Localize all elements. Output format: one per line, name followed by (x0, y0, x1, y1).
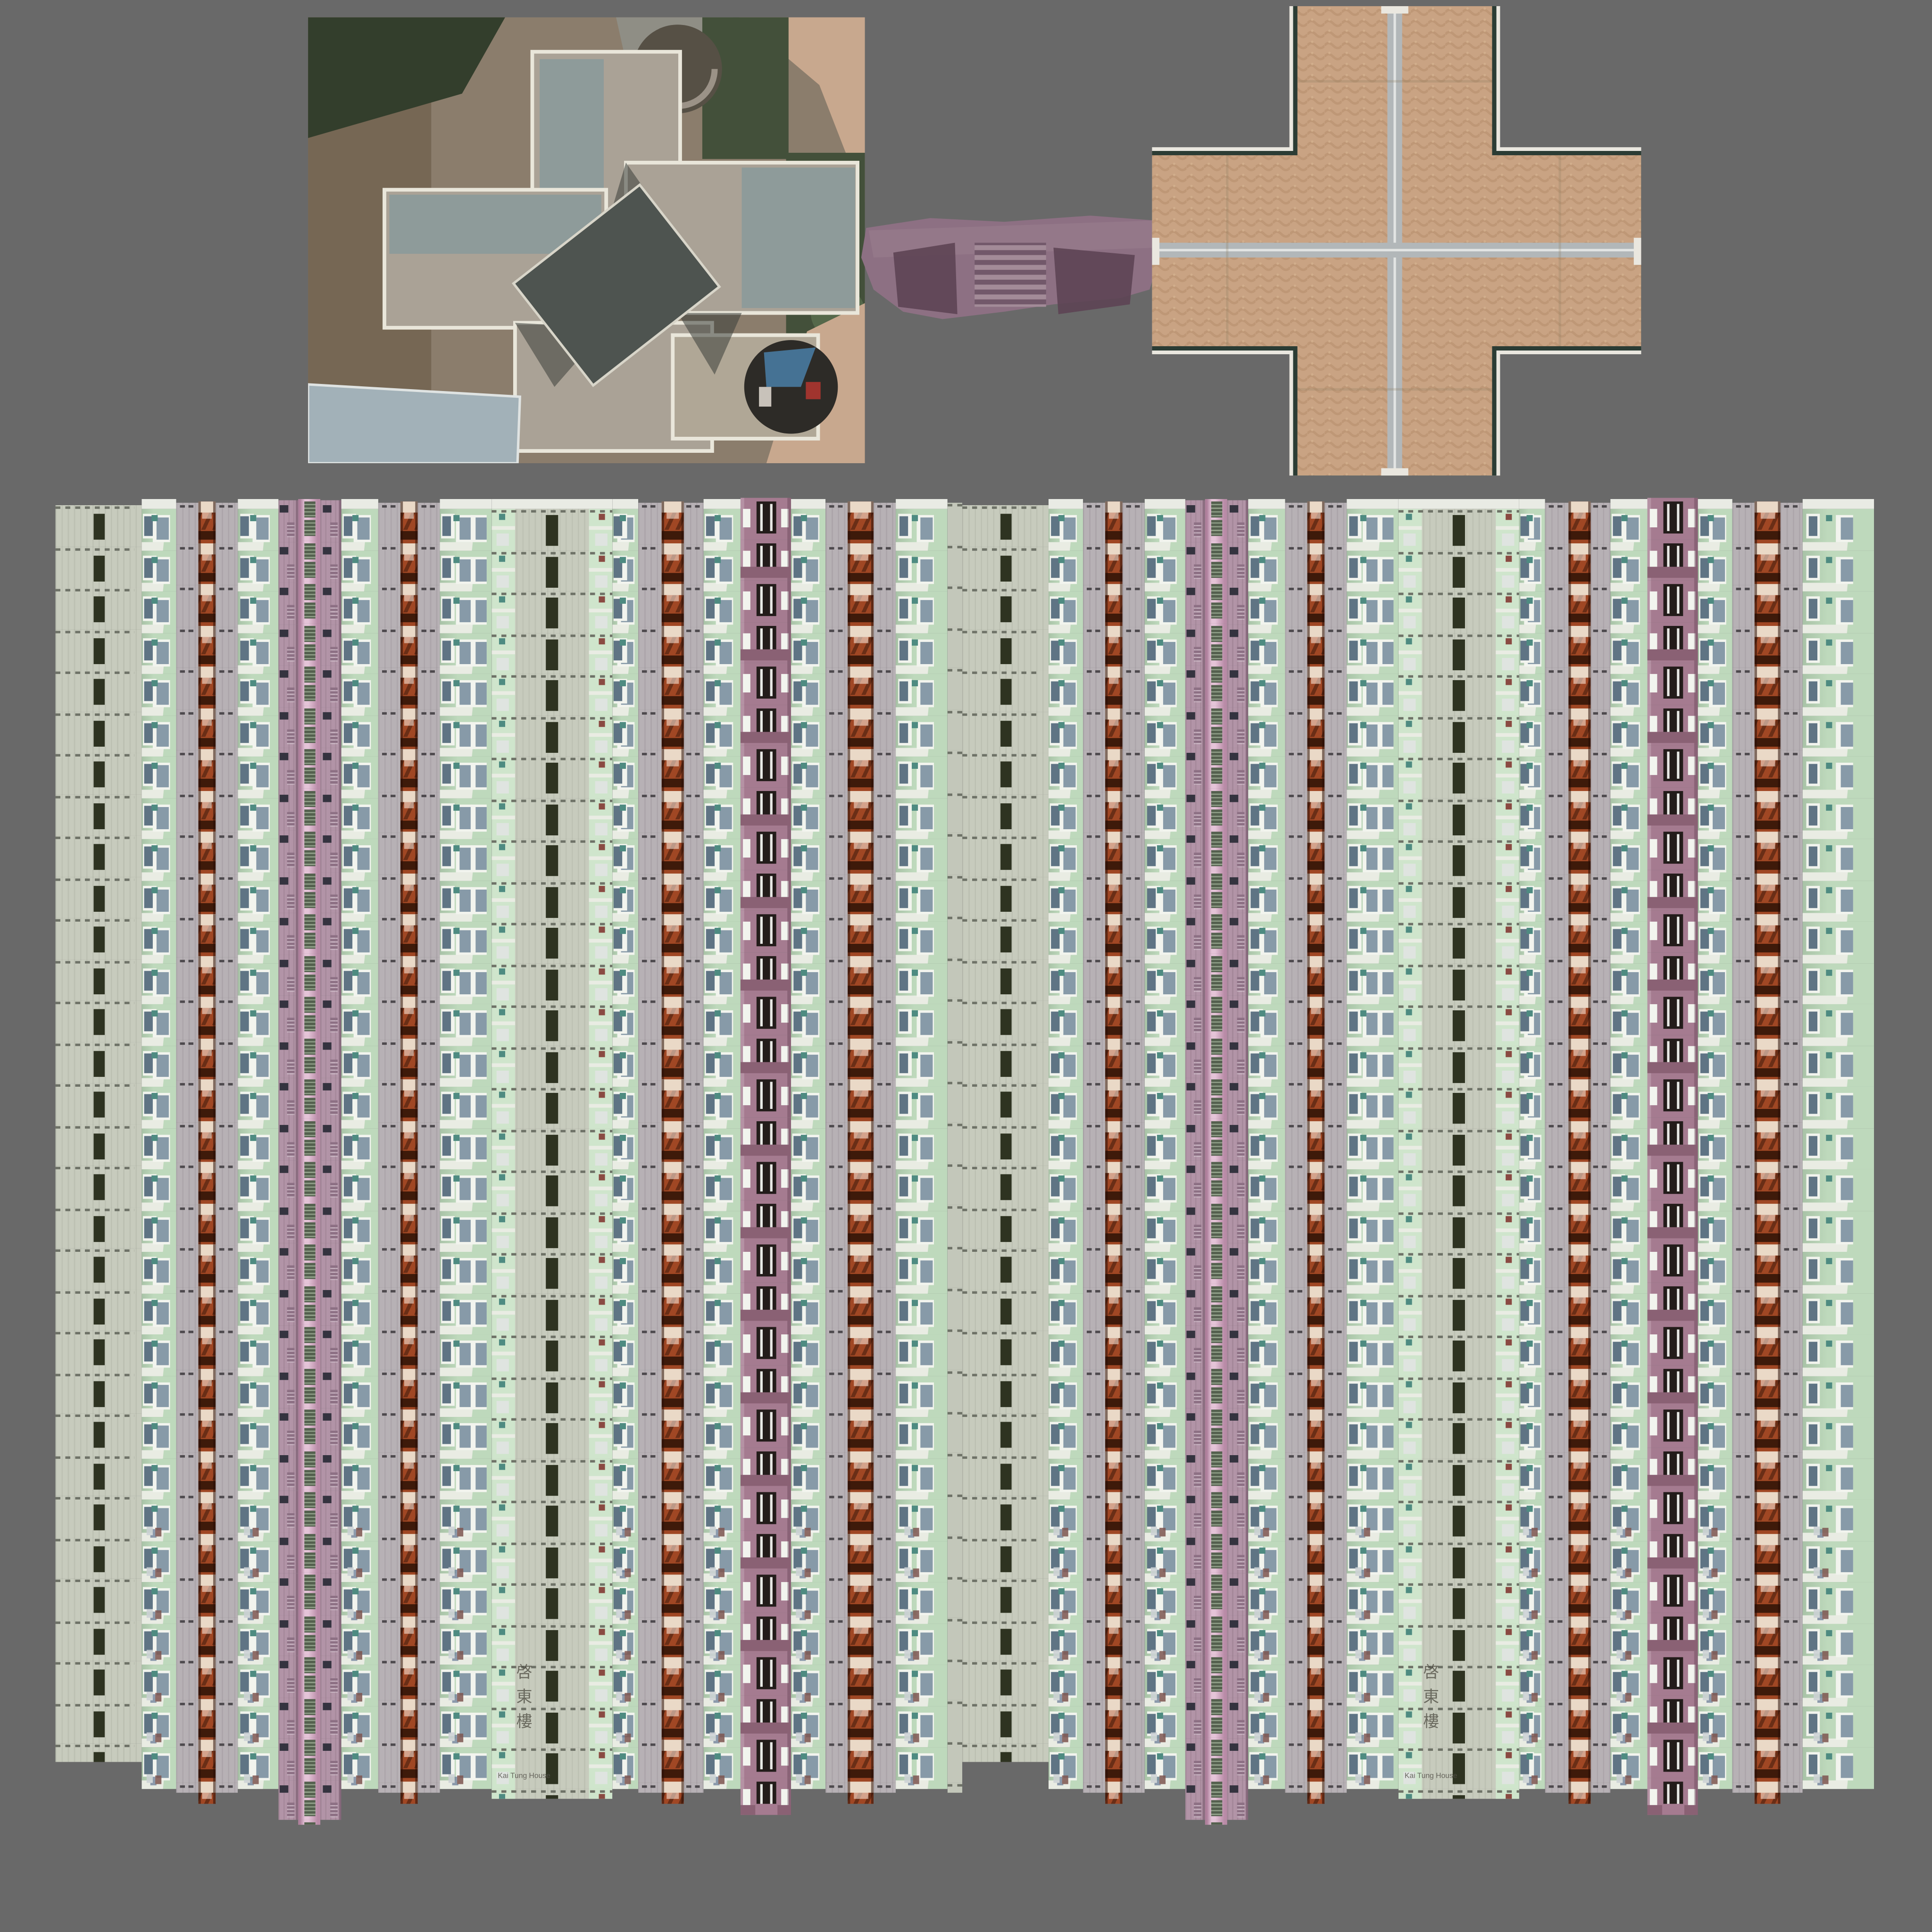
floor-band (1610, 1004, 1647, 1046)
floor-band (142, 1665, 176, 1706)
floor-band (56, 1372, 142, 1414)
floor-band (1285, 1493, 1307, 1535)
floor-band (684, 1617, 704, 1659)
floor-band (1185, 831, 1205, 872)
floor-band (1145, 715, 1185, 757)
floor-band (1205, 664, 1227, 706)
floor-band (278, 1449, 298, 1491)
floor-band (1610, 1293, 1647, 1335)
floor-band (684, 874, 704, 916)
floor-band (491, 798, 612, 839)
floor-band (199, 1368, 216, 1410)
floor-band (848, 791, 874, 832)
floor-band (1591, 1411, 1610, 1452)
floor-band (1145, 1665, 1185, 1706)
floor-band (1545, 1534, 1569, 1576)
floor-band (638, 1163, 662, 1205)
floor-band (1145, 1582, 1185, 1624)
floor-band (320, 1697, 341, 1739)
floor-band (378, 1081, 400, 1122)
floor-band (176, 791, 199, 833)
floor-band (1083, 1369, 1105, 1411)
floor-band (874, 1782, 896, 1793)
floor-band (341, 1293, 378, 1335)
floor-band (400, 584, 418, 625)
floor-band (400, 625, 418, 667)
floor-band (1648, 1695, 1698, 1736)
floor-band (400, 1492, 418, 1533)
floor-band (1123, 1411, 1145, 1452)
texture-atlas-canvas: 啓東樓 Kai Tung House啓東樓 Kai Tung House (0, 0, 1932, 1932)
floor-band (1227, 1243, 1248, 1285)
floor-band (1519, 1376, 1545, 1417)
floor-band (440, 963, 492, 1004)
floor-band (199, 1409, 216, 1451)
floor-band (638, 1411, 662, 1452)
floor-band (216, 1452, 238, 1493)
floor-band (791, 1293, 825, 1335)
floor-band (662, 501, 684, 543)
floor-band (1648, 1447, 1698, 1489)
floor-band (1205, 1737, 1227, 1779)
floor-band (684, 585, 704, 627)
floor-band (1324, 791, 1347, 833)
floor-band (216, 1122, 238, 1163)
floor-band (1324, 833, 1347, 874)
floor-band (56, 877, 142, 918)
floor-band (638, 1576, 662, 1617)
floor-band (1610, 715, 1647, 757)
floor-band (848, 1286, 874, 1327)
facade-strip-m1 (278, 500, 298, 1820)
floor-band (1399, 922, 1519, 963)
floor-band (320, 1491, 341, 1532)
floor-band (662, 1409, 684, 1451)
floor-band (962, 1248, 1049, 1290)
floor-band (1732, 791, 1755, 833)
floor-band (142, 591, 176, 633)
floor-band (1591, 544, 1610, 585)
floor-band (1105, 956, 1123, 997)
floor-band (176, 544, 199, 585)
floor-band (1803, 1334, 1874, 1376)
floor-band (1591, 1328, 1610, 1370)
facade-strip-b (791, 499, 825, 1789)
floor-band (176, 1493, 199, 1535)
floor-band (1105, 1740, 1123, 1781)
floor-band (1205, 1118, 1227, 1160)
floor-band (238, 1665, 278, 1706)
floor-band (298, 1614, 320, 1655)
floor-band (216, 1039, 238, 1081)
floor-band (278, 1326, 298, 1367)
floor-band (1781, 1039, 1803, 1081)
floor-band (848, 501, 874, 543)
floor-band (1698, 550, 1732, 591)
floor-band (662, 791, 684, 832)
floor-band (278, 831, 298, 872)
floor-band (1307, 1657, 1325, 1699)
floor-band (1781, 544, 1803, 585)
floor-band (1185, 1656, 1205, 1698)
floor-band (1307, 791, 1325, 832)
floor-band (896, 509, 948, 550)
floor-band (612, 1665, 638, 1706)
floor-band (1049, 674, 1083, 716)
floor-band (320, 748, 341, 790)
floor-band (418, 1576, 440, 1617)
floor-band (176, 1328, 199, 1370)
floor-band (238, 1293, 278, 1335)
floor-band (1083, 709, 1105, 750)
floor-band (56, 1455, 142, 1496)
floor-band (848, 1079, 874, 1121)
floor-band (874, 626, 896, 668)
floor-band (176, 709, 199, 750)
floor-band (491, 1417, 612, 1458)
cross-roof-graphic (1152, 6, 1641, 475)
floor-band (848, 914, 874, 956)
floor-band (298, 1283, 320, 1325)
floor-band (1732, 1122, 1755, 1163)
floor-band (638, 1328, 662, 1370)
floor-band (825, 916, 848, 957)
floor-band (1781, 1369, 1803, 1411)
floor-band (1568, 625, 1591, 667)
floor-band (896, 1376, 948, 1417)
floor-band (1781, 1576, 1803, 1617)
floor-band (1347, 1624, 1399, 1665)
floor-band (320, 541, 341, 583)
floor-band (1591, 1617, 1610, 1659)
floor-band (896, 1747, 948, 1789)
floor-band (216, 791, 238, 833)
floor-band (1519, 1334, 1545, 1376)
floor-band (1803, 1293, 1874, 1335)
floor-band (1591, 1741, 1610, 1782)
floor-band (1568, 1657, 1591, 1699)
floor-band (1049, 1624, 1083, 1665)
floor-band (1781, 1493, 1803, 1535)
floor-band (791, 839, 825, 881)
floor-band (684, 791, 704, 833)
floor-band (1123, 626, 1145, 668)
facade-strip-c (638, 503, 662, 1793)
floor-band (1648, 1199, 1698, 1241)
floor-band (1083, 1204, 1105, 1246)
floor-band (1145, 1210, 1185, 1252)
floor-band (825, 874, 848, 916)
floor-band (896, 1128, 948, 1169)
floor-band (1568, 1533, 1591, 1575)
floor-band (320, 831, 341, 872)
floor-band (848, 543, 874, 584)
floor-band (1347, 1376, 1399, 1417)
floor-band (1347, 839, 1399, 881)
floor-band (1519, 839, 1545, 881)
floor-band (1781, 1534, 1803, 1576)
floor-band (56, 1331, 142, 1372)
floor-band (341, 715, 378, 757)
floor-band (1610, 1210, 1647, 1252)
floor-band (1755, 1574, 1781, 1616)
floor-band (684, 668, 704, 709)
floor-band (418, 916, 440, 957)
floor-band (142, 1747, 176, 1789)
floor-band (378, 503, 400, 544)
floor-band (440, 1458, 492, 1500)
floor-band (1610, 798, 1647, 839)
floor-band (278, 1078, 298, 1120)
floor-band (1227, 1656, 1248, 1698)
floor-band (1049, 1087, 1083, 1128)
floor-band (1248, 1789, 1285, 1789)
floor-band (1307, 749, 1325, 791)
floor-band (1545, 1287, 1569, 1328)
floor-band (418, 1328, 440, 1370)
floor-band (1568, 997, 1591, 1038)
floor-band (1145, 674, 1185, 716)
floor-band (1519, 1458, 1545, 1500)
floor-band (56, 1166, 142, 1207)
floor-band (320, 1574, 341, 1615)
floor-band (418, 791, 440, 833)
floor-band (491, 1004, 612, 1046)
facade-strip-c (1591, 503, 1610, 1793)
floor-band (278, 954, 298, 996)
floor-band (298, 1820, 320, 1824)
floor-band (848, 625, 874, 667)
floor-band (962, 1000, 1049, 1042)
floor-band (400, 997, 418, 1038)
floor-band (741, 1324, 791, 1365)
floor-band (948, 791, 962, 833)
floor-band (1227, 1161, 1248, 1202)
floor-band (791, 1045, 825, 1087)
floor-band (1698, 1706, 1732, 1748)
floor-band (662, 1492, 684, 1533)
floor-band (1248, 1334, 1285, 1376)
floor-band (176, 1081, 199, 1122)
floor-band (1648, 1117, 1698, 1158)
floor-band (1803, 674, 1874, 716)
floor-band (400, 1533, 418, 1575)
facade-strip-c (1285, 503, 1307, 1793)
floor-band (962, 1290, 1049, 1331)
floor-band (298, 1531, 320, 1573)
floor-band (704, 1334, 741, 1376)
floor-band (1307, 1244, 1325, 1286)
floor-band (638, 709, 662, 750)
floor-band (612, 880, 638, 922)
floor-band (1227, 1739, 1248, 1780)
floor-band (1399, 1747, 1519, 1789)
floor-band (962, 1702, 1049, 1744)
floor-band (216, 503, 238, 544)
floor-band (1248, 1624, 1285, 1665)
floor-band (1324, 1039, 1347, 1081)
floor-band (1755, 1492, 1781, 1533)
floor-band (704, 1789, 741, 1789)
floor-band (874, 1493, 896, 1535)
floor-band (1399, 1252, 1519, 1293)
floor-band (216, 1534, 238, 1576)
floor-band (199, 1244, 216, 1286)
floor-band (962, 1743, 1049, 1762)
floor-band (491, 1789, 612, 1799)
floor-band (216, 1741, 238, 1782)
floor-band (320, 954, 341, 996)
floor-band (1347, 1128, 1399, 1169)
floor-band (684, 833, 704, 874)
piece-dark-left (893, 243, 958, 315)
floor-band (378, 1122, 400, 1163)
floor-band (684, 709, 704, 750)
floor-band (874, 916, 896, 957)
floor-band (1145, 633, 1185, 674)
floor-band (1049, 715, 1083, 757)
floor-band (848, 873, 874, 915)
facade-strip-b (238, 499, 278, 1789)
floor-band (1568, 501, 1591, 543)
floor-band (1049, 1499, 1083, 1541)
floor-band (418, 998, 440, 1040)
facade-strip-c (216, 503, 238, 1793)
floor-band (440, 1293, 492, 1335)
floor-band (896, 1252, 948, 1293)
floor-band (825, 1287, 848, 1328)
floor-band (216, 626, 238, 668)
floor-band (440, 1334, 492, 1376)
floor-band (1227, 913, 1248, 955)
floor-band (1324, 544, 1347, 585)
parapet-cap (612, 499, 638, 509)
floor-band (1049, 1789, 1083, 1789)
floor-band (56, 1124, 142, 1166)
floor-band (176, 1204, 199, 1246)
floor-band (216, 1493, 238, 1535)
floor-band (1755, 1162, 1781, 1203)
floor-band (1285, 1246, 1307, 1287)
floor-band (704, 1417, 741, 1458)
floor-band (1755, 1616, 1781, 1657)
floor-band (896, 1169, 948, 1211)
floor-band (1049, 509, 1083, 550)
floor-band (238, 880, 278, 922)
floor-band (1205, 1779, 1227, 1820)
floor-band (1519, 1210, 1545, 1252)
floor-band (1248, 633, 1285, 674)
floor-band (1205, 747, 1227, 788)
floor-band (1610, 963, 1647, 1004)
floor-band (491, 1624, 612, 1665)
floor-band (142, 550, 176, 591)
floor-band (662, 543, 684, 584)
floor-band (142, 922, 176, 963)
floor-band (1324, 1452, 1347, 1493)
floor-band (1781, 1287, 1803, 1328)
floor-band (440, 1582, 492, 1624)
floor-band (1248, 1004, 1285, 1046)
aerial-photo-graphic (308, 17, 865, 464)
floor-band (298, 499, 320, 541)
floor-band (1307, 1203, 1325, 1245)
floor-band (418, 544, 440, 585)
floor-band (1698, 1624, 1732, 1665)
floor-band (491, 1045, 612, 1087)
floor-band (341, 1789, 378, 1789)
floor-band (418, 1081, 440, 1122)
floor-band (1145, 839, 1185, 881)
floor-band (1781, 1617, 1803, 1659)
floor-band (320, 872, 341, 913)
floor-band (199, 625, 216, 667)
floor-band (1307, 666, 1325, 708)
floor-band (791, 1128, 825, 1169)
floor-band (684, 1452, 704, 1493)
floor-band (1049, 1417, 1083, 1458)
floor-band (199, 1616, 216, 1657)
floor-band (1248, 963, 1285, 1004)
floor-band (56, 1248, 142, 1290)
floor-band (848, 708, 874, 749)
floor-band (491, 1210, 612, 1252)
floor-band (142, 1624, 176, 1665)
floor-band (378, 750, 400, 792)
floor-band (216, 709, 238, 750)
floor-band (1648, 1530, 1698, 1571)
floor-band (1227, 707, 1248, 748)
floor-band (825, 1204, 848, 1246)
floor-band (1227, 872, 1248, 913)
floor-band (1519, 757, 1545, 798)
floor-band (1591, 626, 1610, 668)
floor-band (1399, 550, 1519, 591)
floor-band (1049, 1252, 1083, 1293)
floor-band (1307, 1327, 1325, 1368)
floor-band (341, 839, 378, 881)
floor-band (199, 1121, 216, 1162)
floor-band (1755, 791, 1781, 832)
floor-band (142, 1128, 176, 1169)
floor-band (1105, 1244, 1123, 1286)
floor-band (298, 912, 320, 953)
floor-band (1307, 543, 1325, 584)
floor-band (56, 1207, 142, 1249)
floor-band (1248, 798, 1285, 839)
floor-band (1698, 509, 1732, 550)
floor-band (320, 1656, 341, 1698)
floor-band (848, 1451, 874, 1492)
floor-band (791, 1582, 825, 1624)
floor-band (378, 1287, 400, 1328)
floor-band (948, 1411, 962, 1452)
floor-band (1347, 1747, 1399, 1789)
floor-band (418, 1493, 440, 1535)
floor-band (176, 998, 199, 1040)
floor-band (1205, 1036, 1227, 1077)
floor-band (1568, 873, 1591, 915)
floor-band (1399, 674, 1519, 716)
floor-band (1399, 1706, 1519, 1748)
floor-band (948, 1658, 962, 1700)
facade-strip-b (704, 499, 741, 1789)
floor-band (848, 1533, 874, 1575)
floor-band (612, 1169, 638, 1211)
floor-band (278, 707, 298, 748)
floor-band (341, 1004, 378, 1046)
floor-band (341, 591, 378, 633)
